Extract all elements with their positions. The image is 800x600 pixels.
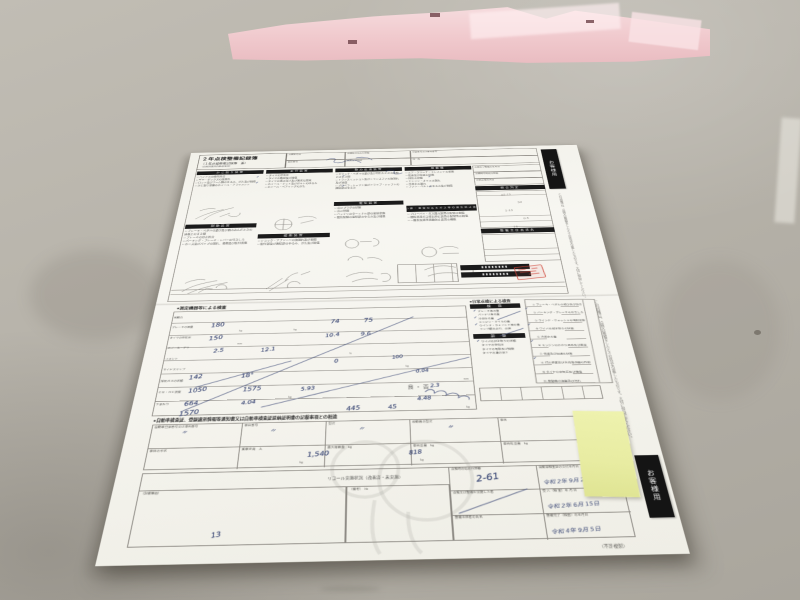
paper-edge-right bbox=[774, 117, 800, 223]
pen-strokes bbox=[95, 145, 690, 566]
table-speck bbox=[754, 330, 761, 335]
photo-of-inspection-form: { "tabs": {"top": "お客様用", "bottom": "お客様… bbox=[0, 0, 800, 600]
inspection-record-sheet: ２年点検整備記録簿 （１年点検整備記録簿 兼） （自家用乗用自動車等用） 点検年… bbox=[95, 145, 690, 566]
copy-prohibited-note: （不許複製） bbox=[598, 543, 628, 550]
table-stain bbox=[660, 260, 780, 400]
pink-sheet-print-mark bbox=[348, 40, 357, 44]
table-speck bbox=[320, 586, 380, 592]
pink-sheet-print-mark bbox=[586, 20, 594, 23]
pink-sheet bbox=[0, 0, 800, 90]
pink-sheet-print-mark bbox=[430, 13, 440, 17]
table-stain bbox=[30, 250, 160, 340]
